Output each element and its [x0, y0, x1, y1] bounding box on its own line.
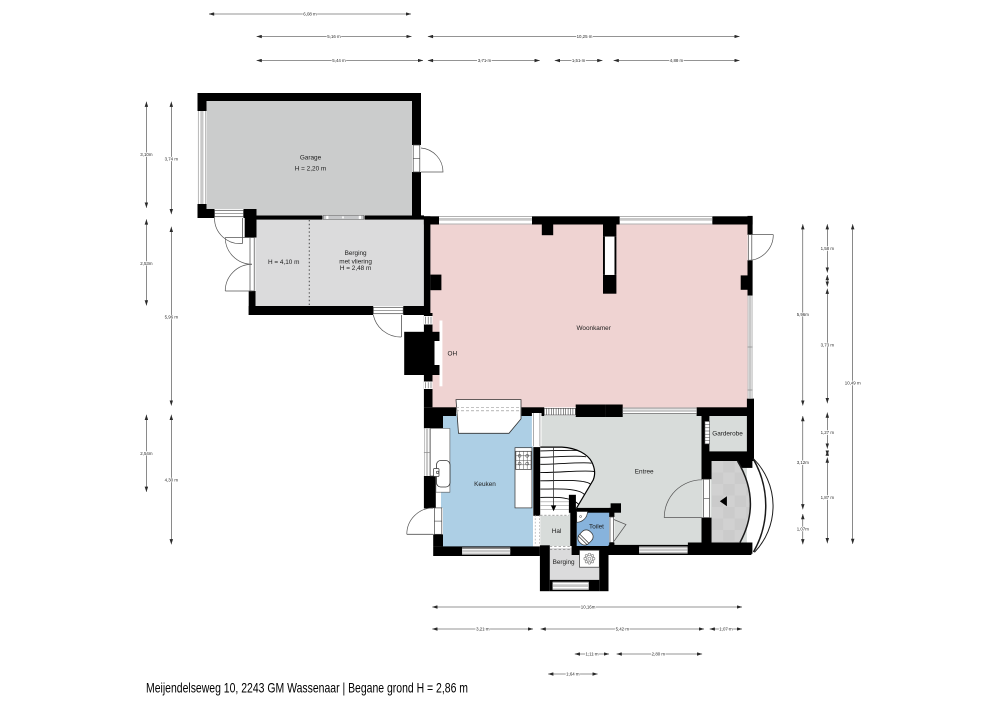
- svg-text:1,07 m: 1,07 m: [719, 627, 733, 632]
- svg-text:Keuken: Keuken: [474, 481, 496, 488]
- svg-text:1,51 m: 1,51 m: [572, 58, 586, 63]
- svg-text:Meijendelseweg 10, 2243 GM Was: Meijendelseweg 10, 2243 GM Wassenaar | B…: [146, 680, 468, 696]
- svg-text:4,88 m: 4,88 m: [670, 58, 684, 63]
- svg-text:10,16m: 10,16m: [581, 605, 596, 610]
- svg-text:1,07m: 1,07m: [797, 527, 810, 532]
- svg-text:1,11 m: 1,11 m: [585, 652, 598, 657]
- svg-text:1,27 m: 1,27 m: [821, 430, 835, 435]
- svg-text:5,16 m: 5,16 m: [327, 34, 341, 39]
- svg-text:5,44 m: 5,44 m: [332, 58, 346, 63]
- svg-text:10,49 m: 10,49 m: [845, 380, 861, 385]
- svg-text:3,73 m: 3,73 m: [821, 343, 835, 348]
- svg-text:Garage: Garage: [300, 155, 322, 162]
- svg-text:5,96m: 5,96m: [797, 312, 810, 317]
- svg-text:3,71 m: 3,71 m: [478, 58, 492, 63]
- svg-text:OH: OH: [448, 351, 458, 358]
- svg-text:H = 2,20 m: H = 2,20 m: [295, 166, 326, 173]
- svg-text:4,30 m: 4,30 m: [165, 478, 179, 483]
- svg-text:2,54m: 2,54m: [140, 451, 153, 456]
- svg-text:Garderobe: Garderobe: [712, 431, 743, 438]
- svg-text:3,12m: 3,12m: [797, 460, 810, 465]
- svg-text:Entree: Entree: [635, 469, 654, 476]
- svg-text:Berging: Berging: [553, 559, 575, 566]
- svg-text:Woonkamer: Woonkamer: [577, 325, 612, 332]
- svg-text:5,96 m: 5,96 m: [165, 314, 179, 319]
- svg-text:1,64 m: 1,64 m: [566, 672, 580, 677]
- svg-text:1,87 m: 1,87 m: [821, 495, 835, 500]
- svg-text:Berging: Berging: [345, 250, 367, 257]
- svg-text:3,74 m: 3,74 m: [165, 157, 179, 162]
- svg-text:Hal: Hal: [552, 528, 562, 535]
- svg-text:3,21 m: 3,21 m: [476, 627, 490, 632]
- svg-text:5,42 m: 5,42 m: [616, 627, 630, 632]
- svg-text:3,10m: 3,10m: [140, 152, 153, 157]
- svg-text:6,08 m: 6,08 m: [303, 12, 317, 17]
- svg-text:H = 4,10 m: H = 4,10 m: [268, 259, 299, 266]
- svg-text:10,25 m: 10,25 m: [577, 34, 593, 39]
- svg-text:H = 2,48 m: H = 2,48 m: [340, 265, 371, 272]
- svg-text:1,58 m: 1,58 m: [821, 246, 835, 251]
- svg-text:2,80 m: 2,80 m: [652, 652, 666, 657]
- svg-text:2,53m: 2,53m: [140, 261, 153, 266]
- svg-text:Toilet: Toilet: [589, 524, 604, 531]
